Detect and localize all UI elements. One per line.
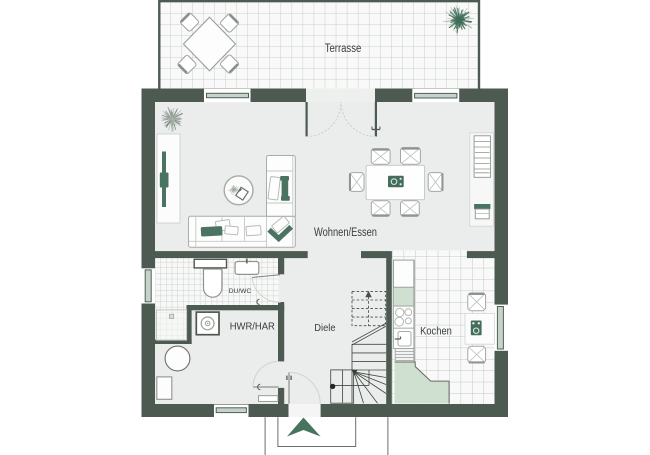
svg-text:Kochen: Kochen — [420, 326, 452, 338]
svg-text:HWR/HAR: HWR/HAR — [230, 320, 276, 332]
svg-text:Diele: Diele — [314, 322, 335, 334]
svg-text:DU/WC: DU/WC — [229, 288, 252, 295]
svg-text:Wohnen/Essen: Wohnen/Essen — [314, 227, 377, 239]
svg-text:Terrasse: Terrasse — [325, 43, 362, 55]
